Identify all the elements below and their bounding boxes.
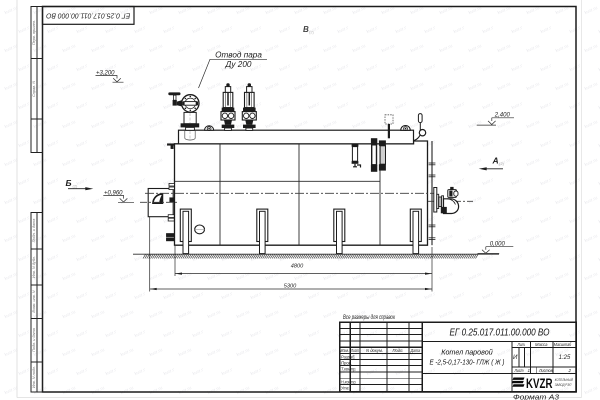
svg-text:Н.контр.: Н.контр. bbox=[341, 379, 357, 384]
svg-text:Подп. и дата: Подп. и дата bbox=[32, 219, 36, 243]
svg-text:Пров.: Пров. bbox=[341, 361, 352, 366]
svg-text:+3,200: +3,200 bbox=[96, 71, 115, 77]
svg-text:Разраб.: Разраб. bbox=[341, 354, 356, 359]
svg-text:КОТЕЛЬНЫЙ: КОТЕЛЬНЫЙ bbox=[555, 378, 573, 382]
svg-text:Подп.: Подп. bbox=[393, 348, 404, 353]
svg-text:Масштаб: Масштаб bbox=[554, 342, 572, 347]
svg-text:N докум.: N докум. bbox=[366, 348, 383, 353]
svg-text:Е -2,5-0,17-130- ГЛЖ ( Ж ): Е -2,5-0,17-130- ГЛЖ ( Ж ) bbox=[430, 357, 505, 366]
svg-text:Инв. N дубл.: Инв. N дубл. bbox=[32, 256, 36, 278]
svg-text:А: А bbox=[492, 156, 499, 166]
svg-text:Ду 200: Ду 200 bbox=[225, 60, 252, 69]
svg-text:И: И bbox=[513, 354, 518, 361]
svg-text:Подп. и дата: Подп. и дата bbox=[32, 328, 36, 352]
svg-text:Инв. N подл.: Инв. N подл. bbox=[32, 366, 36, 388]
svg-text:Лист: Лист bbox=[514, 368, 524, 373]
svg-text:1:25: 1:25 bbox=[559, 355, 571, 361]
svg-text:Дата: Дата bbox=[410, 348, 421, 353]
svg-text:Лист: Лист bbox=[350, 348, 359, 353]
svg-text:KVZR: KVZR bbox=[526, 376, 553, 391]
svg-text:Котел паровой: Котел паровой bbox=[441, 348, 493, 357]
svg-text:+0,960: +0,960 bbox=[104, 190, 123, 196]
svg-text:Утв.: Утв. bbox=[341, 386, 350, 391]
svg-text:(2): (2) bbox=[73, 184, 79, 189]
svg-text:ЕГ 0.25.017.011.00.000 ВО: ЕГ 0.25.017.011.00.000 ВО bbox=[46, 11, 130, 20]
svg-text:Изм.: Изм. bbox=[341, 348, 350, 353]
svg-text:0,000: 0,000 bbox=[490, 241, 506, 247]
svg-text:5300: 5300 bbox=[284, 283, 297, 289]
svg-text:2,400: 2,400 bbox=[494, 112, 511, 118]
svg-text:ЗАВОД РЭП: ЗАВОД РЭП bbox=[555, 383, 572, 387]
svg-text:2: 2 bbox=[568, 368, 572, 373]
svg-text:4800: 4800 bbox=[291, 263, 304, 269]
svg-text:Листов: Листов bbox=[538, 368, 553, 373]
svg-text:Перв. примен.: Перв. примен. bbox=[32, 20, 36, 45]
svg-text:(2): (2) bbox=[499, 161, 505, 166]
svg-text:Формат А3: Формат А3 bbox=[513, 392, 559, 400]
svg-text:Б: Б bbox=[66, 178, 72, 188]
svg-text:Т.контр.: Т.контр. bbox=[341, 367, 357, 372]
svg-text:Взам. инв. N: Взам. инв. N bbox=[32, 290, 36, 312]
svg-text:Масса: Масса bbox=[535, 342, 548, 347]
svg-text:Отвод пара: Отвод пара bbox=[215, 51, 262, 60]
svg-text:Спрaв. N: Спрaв. N bbox=[32, 81, 36, 97]
svg-text:Все размеры для справок: Все размеры для справок bbox=[343, 315, 396, 321]
svg-text:Лит.: Лит. bbox=[517, 342, 526, 347]
svg-text:(2): (2) bbox=[309, 30, 315, 35]
svg-text:ЕГ 0.25.017.011.00.000 ВО: ЕГ 0.25.017.011.00.000 ВО bbox=[450, 328, 550, 339]
